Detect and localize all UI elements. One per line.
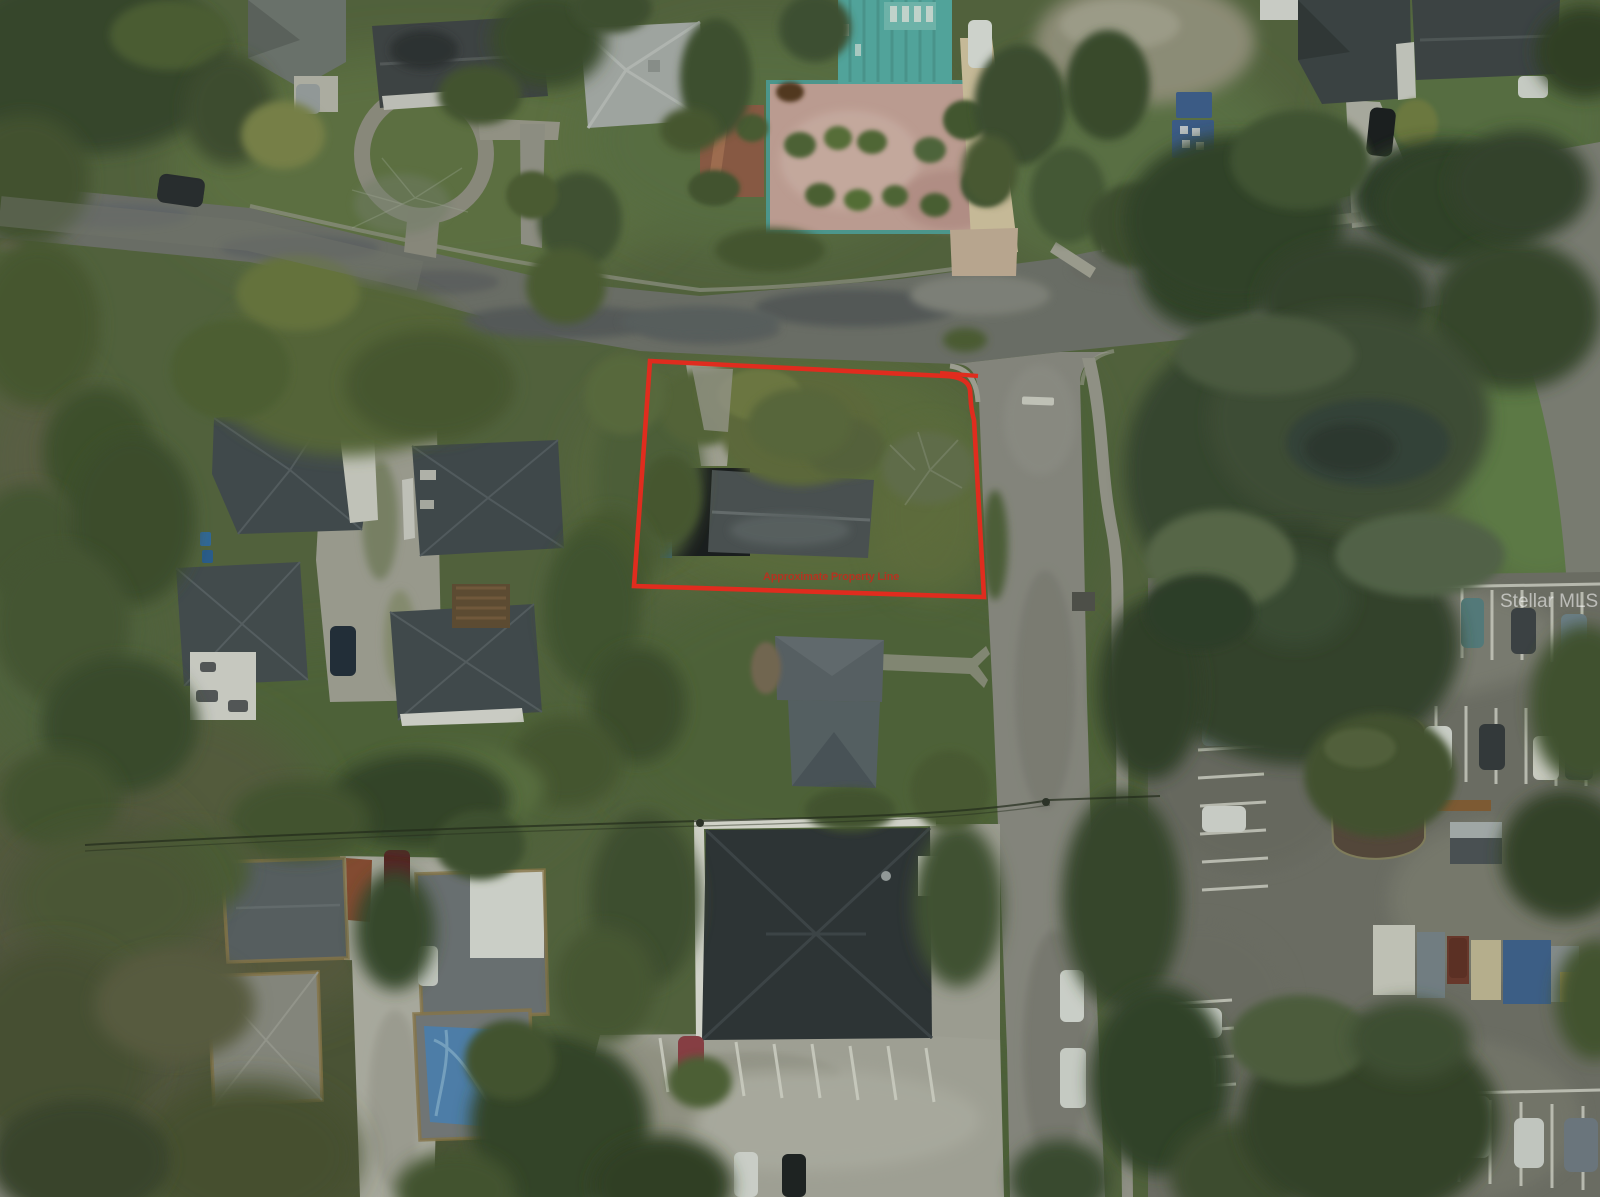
svg-text:Stellar MLS: Stellar MLS [1500, 591, 1598, 612]
svg-text:Approximate Property Line: Approximate Property Line [763, 571, 899, 583]
